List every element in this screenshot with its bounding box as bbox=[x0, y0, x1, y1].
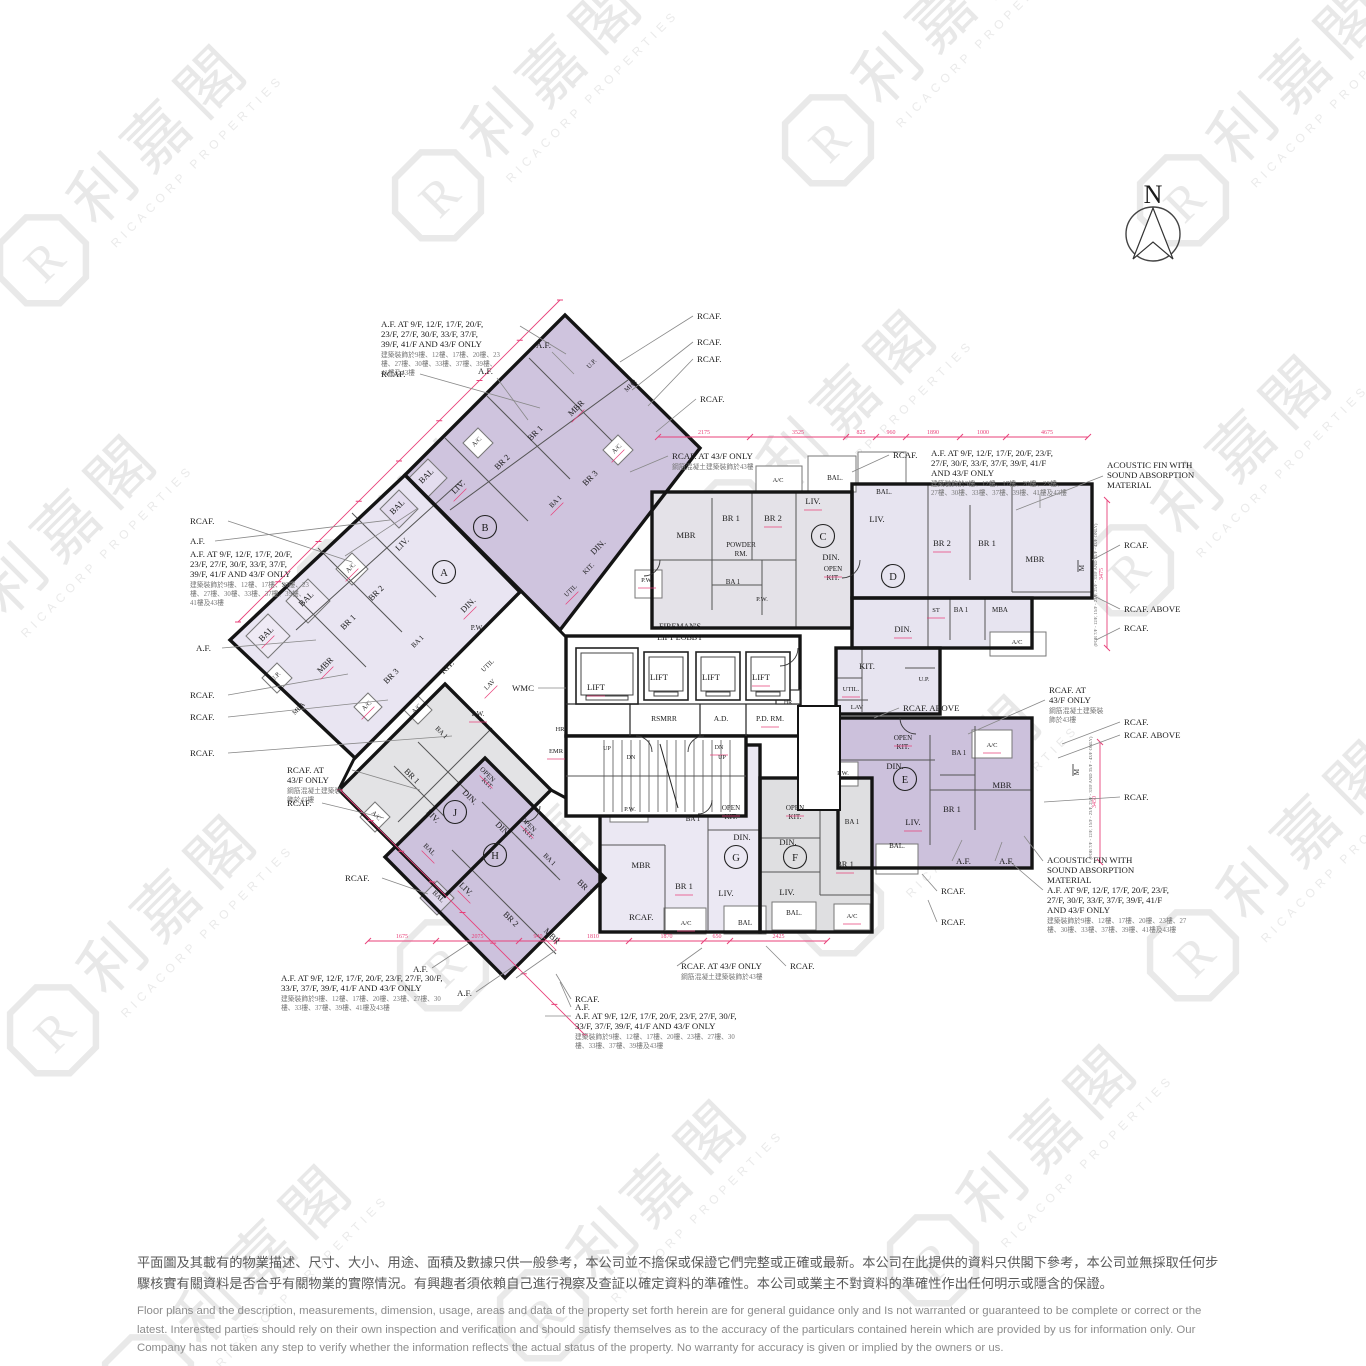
dim-value: 4675 bbox=[1041, 430, 1053, 436]
room-label: P.W. bbox=[641, 577, 653, 584]
room-label: A/C bbox=[847, 913, 858, 920]
dim-value: 1870 bbox=[661, 934, 673, 940]
room-label: MBA bbox=[992, 606, 1008, 614]
annotation-zh: 建築裝飾於9樓、12樓、17樓、20樓、23樓、27樓、30 bbox=[575, 1032, 735, 1041]
room-label: OPEN bbox=[722, 804, 740, 812]
room-label: BAL. bbox=[876, 488, 892, 496]
platform bbox=[635, 570, 662, 598]
room-label: BAL. bbox=[889, 842, 905, 850]
dim-value: 3475 bbox=[1099, 568, 1105, 580]
annotation: SOUND ABSORPTION bbox=[1047, 865, 1135, 875]
room-label: KIT. bbox=[789, 813, 802, 821]
annotation: RCAF. AT bbox=[287, 765, 325, 775]
unit-letter-J: J bbox=[453, 808, 457, 819]
annotation-zh: 鋼筋混凝土建築裝 bbox=[1049, 706, 1104, 715]
annotation: ACOUSTIC FIN WITH bbox=[1107, 460, 1193, 470]
room-label: LIV. bbox=[718, 888, 733, 898]
dim-value: 1810 bbox=[587, 934, 599, 940]
annotation: RCAF. bbox=[941, 886, 965, 896]
room-label: OPEN bbox=[824, 565, 842, 573]
annotation: RCAF. bbox=[629, 912, 653, 922]
room-label: LIFT bbox=[752, 672, 771, 682]
room-label: DIN. bbox=[894, 624, 911, 634]
room-label: BA 1 bbox=[954, 606, 969, 614]
room-label: KIT. bbox=[827, 574, 840, 582]
annotation: A.F. bbox=[196, 643, 211, 653]
room-label: DIN. bbox=[822, 552, 839, 562]
dim-value: 3525 bbox=[792, 430, 804, 436]
annotation: RCAF. bbox=[697, 337, 721, 347]
room-label: DN bbox=[627, 755, 636, 761]
dim-value: 825 bbox=[857, 430, 866, 436]
north-arrow bbox=[1126, 207, 1180, 261]
room-label: OPEN bbox=[786, 804, 804, 812]
annotation-zh: 建築裝飾於9樓、12樓、17樓、20樓、23 bbox=[190, 580, 310, 589]
unit-letter-F: F bbox=[792, 853, 798, 864]
annotation: A.F. AT 9/F, 12/F, 17/F, 20/F, 23/F, 27/… bbox=[575, 1011, 737, 1021]
room-label: POWDER bbox=[726, 541, 756, 549]
annotation: RCAF. AT 43/F ONLY bbox=[672, 451, 754, 461]
annotation-zh: 鋼筋混凝土建築裝飾於43樓 bbox=[681, 972, 763, 981]
room-label: LIFT bbox=[702, 672, 721, 682]
unit-letter-E: E bbox=[902, 775, 908, 786]
room-label: MBR bbox=[632, 860, 651, 870]
dim-value: 960 bbox=[887, 430, 896, 436]
room-label: EMR bbox=[549, 748, 564, 755]
plan-shape bbox=[1133, 208, 1173, 259]
room-label: U.P. bbox=[919, 676, 930, 683]
room-label: HR bbox=[784, 700, 792, 706]
annotation: RCAF. AT 43/F ONLY bbox=[681, 961, 763, 971]
unit-D-area bbox=[852, 484, 1092, 598]
room-label: LAV bbox=[851, 704, 864, 711]
annotation: RCAF. bbox=[1124, 540, 1148, 550]
room-label: MBR bbox=[993, 780, 1012, 790]
annotation: A.F. AT 9/F, 12/F, 17/F, 20/F, bbox=[190, 549, 292, 559]
room-label: P.W. bbox=[756, 596, 768, 603]
room-label: BAL bbox=[738, 919, 752, 927]
annotation: 39/F, 41/F AND 43/F ONLY bbox=[190, 569, 291, 579]
room-label: P.W. bbox=[472, 710, 485, 718]
room-label: UP bbox=[718, 755, 726, 761]
room-label: LIV. bbox=[905, 817, 920, 827]
room-label: BR 1 bbox=[943, 804, 961, 814]
annotation: RCAF. bbox=[697, 354, 721, 364]
annotation-zh: 鋼筋混凝土建築裝 bbox=[287, 786, 342, 795]
room-label: UTIL. bbox=[843, 686, 860, 693]
leader-line bbox=[766, 946, 786, 966]
annotation: 33/F, 37/F, 39/F, 41/F AND 43/F ONLY bbox=[575, 1021, 716, 1031]
annotation: RCAF. bbox=[190, 690, 214, 700]
annotation: RCAF. bbox=[190, 712, 214, 722]
north-label: N bbox=[1144, 180, 1163, 209]
leader-line bbox=[1096, 628, 1120, 640]
room-label: KIT. bbox=[859, 661, 875, 671]
floors-note: (FOR 7/F - 12/F, 15/F - 23/F, 25/F - 33/… bbox=[1093, 523, 1099, 646]
room-label: P.W. bbox=[837, 770, 849, 777]
annotation: RCAF. bbox=[893, 450, 917, 460]
dim-value: 2425 bbox=[773, 934, 785, 940]
room-label: LIV. bbox=[805, 496, 820, 506]
annotation-zh: 樓、33樓、37樓、39樓及43樓 bbox=[575, 1041, 664, 1050]
room-label: HR bbox=[555, 726, 565, 733]
corridor bbox=[798, 706, 840, 810]
annotation-zh: 樓、30樓、33樓、37樓、39樓、41樓及43樓 bbox=[1047, 925, 1176, 934]
annotation: 43/F ONLY bbox=[287, 775, 330, 785]
annotation-zh: 27樓、30樓、33樓、37樓、39樓、41樓及43樓 bbox=[931, 488, 1067, 497]
annotation: RCAF. bbox=[345, 873, 369, 883]
leader-line bbox=[560, 982, 571, 1007]
annotation: A.F. bbox=[999, 856, 1014, 866]
annotation: A.F. bbox=[190, 536, 205, 546]
annotation: RCAF. bbox=[190, 516, 214, 526]
annotation: AND 43/F ONLY bbox=[931, 468, 995, 478]
dim-value: 940 bbox=[534, 934, 543, 940]
room-label: LIV. bbox=[779, 887, 794, 897]
room-label: LIFT LOBBY bbox=[657, 633, 703, 642]
annotation: RCAF. bbox=[1124, 717, 1148, 727]
annotation: WMC bbox=[512, 683, 534, 693]
annotation: 23/F, 27/F, 30/F, 33/F, 37/F, bbox=[190, 559, 287, 569]
unit-letter-G: G bbox=[732, 853, 740, 864]
room-label: OPEN bbox=[894, 734, 912, 742]
annotation: MATERIAL bbox=[1107, 480, 1151, 490]
leader-line bbox=[556, 974, 571, 999]
leader-line bbox=[648, 359, 693, 406]
room-label: P.W. bbox=[624, 806, 636, 813]
annotation: RCAF. bbox=[190, 748, 214, 758]
disclaimer: 平面圖及其載有的物業描述、尺寸、大小、用途、面積及數據只供一般參考，本公司並不擔… bbox=[137, 1252, 1231, 1358]
annotation-zh: 建築裝飾於9樓、12樓、17樓、20樓、23樓、27樓、30 bbox=[281, 994, 441, 1003]
annotation-zh: 建築裝飾於9樓、12樓、17樓、20樓、23 bbox=[381, 350, 501, 359]
leader-line bbox=[620, 316, 693, 362]
room-label: LIV. bbox=[869, 514, 884, 524]
annotation: 33/F, 37/F, 39/F, 41/F AND 43/F ONLY bbox=[281, 983, 422, 993]
room-label: KIT. bbox=[725, 813, 738, 821]
annotation: RCAF. bbox=[697, 311, 721, 321]
room-label: A/C bbox=[987, 742, 998, 749]
annotation: A.F. bbox=[457, 988, 472, 998]
annotation: A.F. bbox=[478, 366, 493, 376]
annotation: A.F. bbox=[956, 856, 971, 866]
room-label: A.D. bbox=[714, 714, 729, 723]
annotation: 39/F, 41/F AND 43/F ONLY bbox=[381, 339, 482, 349]
unit-letter-C: C bbox=[819, 532, 826, 543]
room-label: A/C bbox=[773, 477, 784, 484]
room-label: UTIL bbox=[480, 658, 495, 673]
annotation: A.F. AT 9/F, 12/F, 17/F, 20/F, 23/F, 27/… bbox=[281, 973, 443, 983]
room-label: RM. bbox=[735, 550, 748, 558]
annotation: AND 43/F ONLY bbox=[1047, 905, 1111, 915]
room-label: DN bbox=[715, 745, 724, 751]
leader-line bbox=[432, 944, 468, 968]
room-label: BAL. bbox=[786, 909, 802, 917]
leader-line bbox=[922, 874, 937, 891]
room-label: UP bbox=[603, 746, 611, 752]
dim-value: 1675 bbox=[396, 934, 408, 940]
annotation: RCAF. bbox=[1124, 623, 1148, 633]
plan-shape bbox=[551, 790, 566, 798]
meter-mark: M bbox=[1073, 768, 1081, 775]
room-label: BA 1 bbox=[845, 818, 860, 826]
room-label: BAL. bbox=[827, 474, 843, 482]
unit-letter-D: D bbox=[889, 572, 897, 583]
floor-plan-page: R利嘉閣RICACORP PROPERTIESR利嘉閣RICACORP PROP… bbox=[0, 0, 1366, 1366]
annotation: A.F. AT 9/F, 12/F, 17/F, 20/F, 23/F, bbox=[1047, 885, 1169, 895]
room-label: RSMRR bbox=[651, 714, 677, 723]
unit-letter-H: H bbox=[491, 851, 499, 862]
room-label: BA 1 bbox=[726, 578, 741, 586]
room-label: MBR bbox=[677, 530, 696, 540]
meter-mark: M bbox=[1078, 564, 1086, 571]
unit-letter-B: B bbox=[481, 523, 488, 534]
annotation: SOUND ABSORPTION bbox=[1107, 470, 1195, 480]
dim-value: 1890 bbox=[927, 430, 939, 436]
annotation-zh: 樓、27樓、30樓、33樓、37樓、39樓、 bbox=[190, 589, 306, 598]
room-label: BR 1 bbox=[836, 859, 854, 869]
annotation-zh: 飾於43樓 bbox=[1049, 715, 1076, 724]
room-label: KIT. bbox=[897, 743, 910, 751]
disclaimer-zh: 平面圖及其載有的物業描述、尺寸、大小、用途、面積及數據只供一般參考，本公司並不擔… bbox=[137, 1252, 1231, 1294]
leader-line bbox=[632, 342, 693, 390]
annotation: RCAF. AT bbox=[1049, 685, 1087, 695]
annotation: A.F. AT 9/F, 12/F, 17/F, 20/F, bbox=[381, 319, 483, 329]
annotation-zh: 41樓及43樓 bbox=[190, 598, 224, 607]
annotation: RCAF. ABOVE bbox=[1124, 604, 1181, 614]
room-label: ST bbox=[932, 607, 940, 614]
annotation-zh: 鋼筋混凝土建築裝飾於43樓 bbox=[672, 462, 754, 471]
annotation: RCAF. ABOVE bbox=[1124, 730, 1181, 740]
annotation: A.F. AT 9/F, 12/F, 17/F, 20/F, 23/F, bbox=[931, 448, 1053, 458]
dim-value: 650 bbox=[713, 934, 722, 940]
annotation: MATERIAL bbox=[1047, 875, 1091, 885]
room-label: FIREMAN'S bbox=[659, 622, 701, 631]
room-label: BA 1 bbox=[952, 749, 967, 757]
dim-value: 2075 bbox=[472, 934, 484, 940]
disclaimer-en: Floor plans and the description, measure… bbox=[137, 1302, 1231, 1357]
room-label: A/C bbox=[1012, 639, 1023, 646]
room-label: MBR bbox=[1026, 554, 1045, 564]
annotation: 27/F, 30/F, 33/F, 37/F, 39/F, 41/F bbox=[1047, 895, 1162, 905]
room-label: BR 1 bbox=[675, 881, 693, 891]
leader-line bbox=[928, 900, 937, 922]
annotation: 27/F, 30/F, 33/F, 37/F, 39/F, 41/F bbox=[931, 458, 1046, 468]
annotation: RCAF. bbox=[941, 917, 965, 927]
annotation-zh: 樓、33樓、37樓、39樓、41樓及43樓 bbox=[281, 1003, 390, 1012]
annotation: RCAF. bbox=[790, 961, 814, 971]
annotation: A.F. bbox=[536, 340, 551, 350]
annotation: RCAF. ABOVE bbox=[903, 703, 960, 713]
room-label: BR 1 bbox=[722, 513, 740, 523]
annotation: 23/F, 27/F, 30/F, 33/F, 37/F, bbox=[381, 329, 478, 339]
room-label: DIN. bbox=[733, 832, 750, 842]
room-label: BR 1 bbox=[978, 538, 996, 548]
room-label: P.D. RM. bbox=[756, 714, 784, 723]
room-label: A/C bbox=[681, 920, 692, 927]
annotation: RCAF. bbox=[700, 394, 724, 404]
room-label: P.W. bbox=[471, 624, 484, 632]
annotation: RCAF. bbox=[1124, 792, 1148, 802]
room-label: LAV bbox=[483, 678, 497, 692]
annotation: RCAF. bbox=[381, 369, 405, 379]
floor-plan: 2175352582596018901000467516752075940181… bbox=[0, 0, 1366, 1366]
room-label: BA 1 bbox=[686, 815, 701, 823]
annotation: 43/F ONLY bbox=[1049, 695, 1092, 705]
dim-value: 2175 bbox=[698, 430, 710, 436]
dim-value: 1000 bbox=[977, 430, 989, 436]
room-label: DIN. bbox=[886, 761, 903, 771]
leader-line bbox=[1044, 797, 1120, 802]
annotation: RCAF. bbox=[287, 798, 311, 808]
room-label: LIFT bbox=[650, 672, 669, 682]
unit-letter-A: A bbox=[440, 568, 448, 579]
annotation-zh: 建築裝飾於9樓、12樓、17樓、20樓、23樓、27 bbox=[1047, 916, 1187, 925]
annotation-zh: 建築裝飾於9樓、12樓、17樓、20樓、23樓、 bbox=[931, 479, 1064, 488]
room-label: BR 2 bbox=[764, 513, 782, 523]
room-label: LIFT bbox=[587, 682, 606, 692]
room-label: BR 2 bbox=[933, 538, 951, 548]
